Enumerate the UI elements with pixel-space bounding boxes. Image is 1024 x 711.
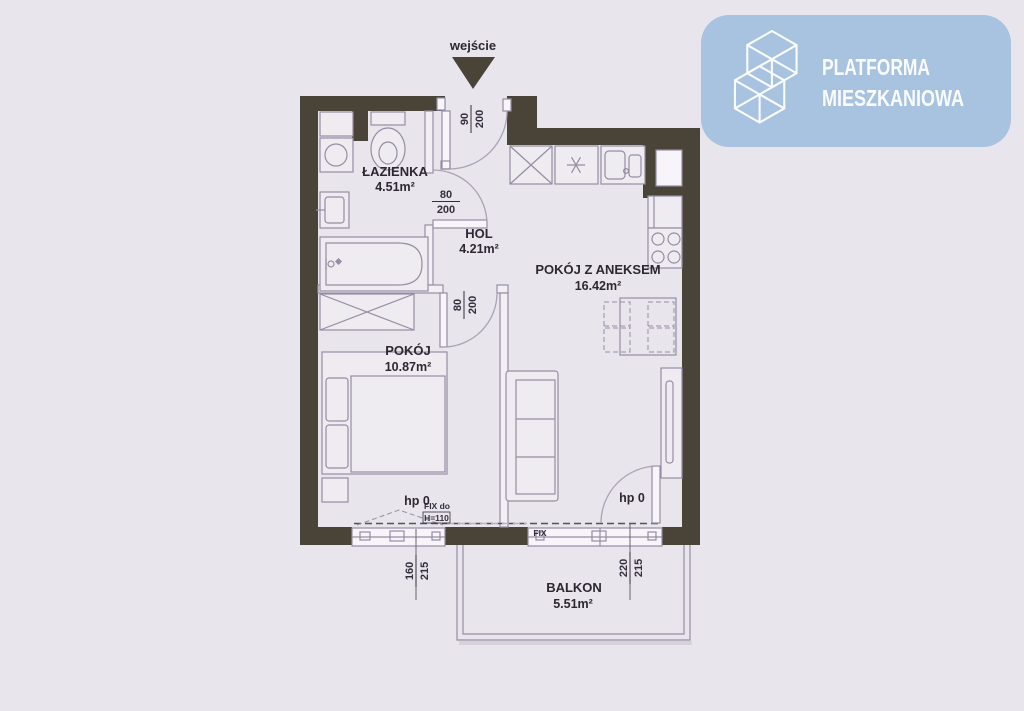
entrance-door — [437, 98, 511, 169]
kitchen-cabinet-crossed — [510, 146, 552, 184]
entrance-arrow-icon — [452, 57, 495, 89]
svg-text:5.51m²: 5.51m² — [553, 597, 593, 611]
dim-entrance-den: 200 — [474, 110, 486, 128]
logo-line2: MIESZKANIOWA — [822, 85, 964, 111]
svg-text:HOL: HOL — [465, 226, 493, 241]
fix-label-balcony: FIX — [533, 528, 547, 538]
room-label-pokoj-z-aneksem: POKÓJ Z ANEKSEM 16.42m² — [535, 262, 660, 293]
shaft-niche — [656, 150, 682, 186]
svg-text:215: 215 — [633, 559, 645, 577]
room-label-lazienka: ŁAZIENKA 4.51m² — [362, 164, 428, 194]
dim-entrance-num: 90 — [459, 113, 471, 125]
svg-text:200: 200 — [467, 296, 479, 314]
svg-text:4.21m²: 4.21m² — [459, 242, 499, 256]
radiator-panel — [661, 368, 682, 478]
svg-text:160: 160 — [404, 562, 416, 580]
dim-bedroom-door: 80 200 — [452, 291, 479, 319]
fix-height-box: H=110 — [423, 512, 450, 523]
dining-table — [604, 298, 676, 355]
svg-text:POKÓJ: POKÓJ — [385, 343, 431, 358]
svg-text:H=110: H=110 — [424, 513, 449, 523]
kitchen-sink — [601, 146, 645, 184]
sill-label-balcony: hp 0 — [619, 491, 645, 505]
room-label-balkon: BALKON 5.51m² — [546, 580, 602, 611]
svg-text:POKÓJ Z ANEKSEM: POKÓJ Z ANEKSEM — [535, 262, 660, 277]
balcony-railing — [457, 545, 692, 645]
dim-bathroom-door: 80 200 — [432, 189, 460, 216]
svg-text:215: 215 — [419, 562, 431, 580]
dim-bedroom-window: 160 215 — [404, 555, 431, 587]
balcony-window — [528, 528, 662, 546]
logo-line1: PLATFORMA — [822, 54, 930, 80]
room-label-hol: HOL 4.21m² — [459, 226, 499, 256]
washing-machine — [320, 138, 353, 172]
nightstand — [322, 478, 348, 502]
logo: PLATFORMA MIESZKANIOWA — [701, 15, 1011, 147]
kitchen-counter — [648, 196, 682, 228]
bathroom-sink — [316, 192, 349, 228]
dim-entrance-door: 90 200 — [459, 105, 486, 133]
wardrobe — [320, 294, 414, 330]
sofa — [506, 371, 558, 501]
svg-text:80: 80 — [440, 189, 452, 201]
svg-text:4.51m²: 4.51m² — [375, 180, 415, 194]
svg-text:16.42m²: 16.42m² — [575, 279, 622, 293]
entrance-marker: wejście — [449, 38, 496, 89]
bathtub — [320, 237, 428, 291]
toilet — [371, 112, 405, 170]
fix-do-label: FIX do — [424, 501, 450, 511]
bathroom-cabinet — [320, 112, 353, 136]
svg-text:ŁAZIENKA: ŁAZIENKA — [362, 164, 428, 179]
entrance-label: wejście — [449, 38, 496, 53]
svg-text:200: 200 — [437, 204, 455, 216]
svg-text:220: 220 — [618, 559, 630, 577]
dim-balcony-window: 220 215 — [618, 552, 645, 584]
svg-text:10.87m²: 10.87m² — [385, 360, 432, 374]
svg-text:BALKON: BALKON — [546, 580, 602, 595]
logo-background — [701, 15, 1011, 147]
svg-text:80: 80 — [452, 299, 464, 311]
fridge — [555, 146, 598, 184]
floorplan-canvas: 90 200 80 200 80 200 160 215 220 215 hp … — [0, 0, 1024, 711]
